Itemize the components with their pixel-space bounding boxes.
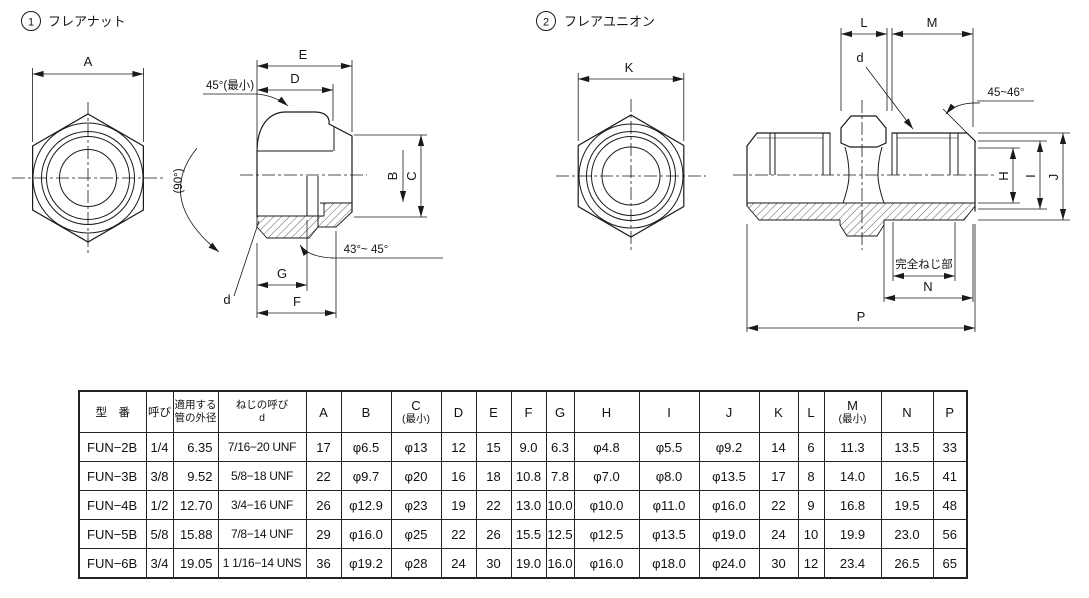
table-cell: 22 — [476, 491, 511, 520]
table-cell: φ9.7 — [341, 462, 391, 491]
column-header: P — [933, 391, 967, 433]
table-cell: FUN−3B — [79, 462, 146, 491]
column-header: L — [798, 391, 824, 433]
column-header: I — [639, 391, 699, 433]
table-cell: 26 — [476, 520, 511, 549]
table-cell: φ16.0 — [574, 549, 639, 579]
figure2-title: フレアユニオン — [564, 14, 655, 29]
table-cell: 24 — [441, 549, 476, 579]
table-cell: 12.5 — [546, 520, 574, 549]
table-cell: 9.0 — [511, 433, 546, 462]
column-header: C(最小) — [391, 391, 441, 433]
table-cell: 16.0 — [546, 549, 574, 579]
table-cell: 16.5 — [881, 462, 933, 491]
thread-note-label: 完全ねじ部 — [895, 257, 953, 271]
table-cell: 18 — [476, 462, 511, 491]
figure1: 1 フレアナット A — [12, 12, 443, 319]
dim-label-h: H — [996, 171, 1011, 180]
table-cell: 22 — [759, 491, 798, 520]
column-header: M(最小) — [824, 391, 881, 433]
table-cell: 15.5 — [511, 520, 546, 549]
figure1-number: 1 — [28, 17, 34, 29]
table-cell: 23.0 — [881, 520, 933, 549]
table-cell: 29 — [306, 520, 341, 549]
column-header: F — [511, 391, 546, 433]
dim-label-k: K — [625, 60, 634, 75]
table-cell: 16 — [441, 462, 476, 491]
column-header: 型 番 — [79, 391, 146, 433]
table-cell: 30 — [476, 549, 511, 579]
table-cell: 14.0 — [824, 462, 881, 491]
table-cell: FUN−2B — [79, 433, 146, 462]
table-cell: 6.35 — [173, 433, 218, 462]
table-row: FUN−5B5/815.887/8−14 UNF29φ16.0φ25222615… — [79, 520, 967, 549]
table-cell: 26 — [306, 491, 341, 520]
table-cell: φ19.0 — [699, 520, 759, 549]
table-cell: 12 — [798, 549, 824, 579]
table-cell: 7/16−20 UNF — [218, 433, 306, 462]
column-header: H — [574, 391, 639, 433]
table-body: FUN−2B1/46.357/16−20 UNF17φ6.5φ1312159.0… — [79, 433, 967, 579]
dim-label-m: M — [927, 15, 938, 30]
table-cell: 36 — [306, 549, 341, 579]
table-cell: 17 — [306, 433, 341, 462]
table-cell: φ8.0 — [639, 462, 699, 491]
table-cell: 41 — [933, 462, 967, 491]
table-cell: 3/8 — [146, 462, 173, 491]
column-header: J — [699, 391, 759, 433]
table-cell: 30 — [759, 549, 798, 579]
figure1-title: フレアナット — [48, 14, 126, 29]
table-cell: FUN−6B — [79, 549, 146, 579]
drawings-canvas: 1 フレアナット A — [0, 0, 1089, 370]
column-header: 呼び — [146, 391, 173, 433]
figure2: 2 フレアユニオン K — [537, 12, 1071, 333]
table-cell: φ4.8 — [574, 433, 639, 462]
table-cell: 22 — [441, 520, 476, 549]
table-cell: 19.05 — [173, 549, 218, 579]
dim-label-c: C — [404, 171, 419, 180]
technical-drawing-sheet: 1 フレアナット A — [0, 0, 1089, 598]
dimension-table: 型 番呼び適用する管の外径ねじの呼びdABC(最小)DEFGHIJKLM(最小)… — [78, 390, 968, 579]
dim-label-i: I — [1023, 174, 1038, 178]
table-cell: 1/4 — [146, 433, 173, 462]
table-cell: 10.8 — [511, 462, 546, 491]
table-cell: 15 — [476, 433, 511, 462]
table-cell: φ13.5 — [639, 520, 699, 549]
table-cell: 6.3 — [546, 433, 574, 462]
table-cell: 26.5 — [881, 549, 933, 579]
table-cell: φ12.5 — [574, 520, 639, 549]
dim-label-d-thread: d — [223, 292, 230, 307]
flare-nut-front-view: A — [12, 54, 164, 254]
table-cell: φ5.5 — [639, 433, 699, 462]
table-cell: 8 — [798, 462, 824, 491]
dim-label-b: B — [385, 172, 400, 181]
table-cell: 5/8−18 UNF — [218, 462, 306, 491]
figure1-header: 1 フレアナット — [22, 12, 126, 31]
table-cell: 12.70 — [173, 491, 218, 520]
table-cell: 15.88 — [173, 520, 218, 549]
table-cell: 3/4 — [146, 549, 173, 579]
angle-callout-45min: 45°(最小) — [206, 79, 254, 92]
dim-label-n: N — [923, 279, 932, 294]
table-cell: 10.0 — [546, 491, 574, 520]
table-cell: 9 — [798, 491, 824, 520]
figure2-header: 2 フレアユニオン — [537, 12, 656, 31]
angle-callout-45-46: 45~46° — [988, 87, 1025, 99]
table-cell: FUN−5B — [79, 520, 146, 549]
table-cell: 11.3 — [824, 433, 881, 462]
flare-nut-section-view: E D B C G F 45°(最小) — [173, 47, 443, 318]
angle-callout-43-45: 43°~ 45° — [344, 244, 389, 256]
table-cell: 13.5 — [881, 433, 933, 462]
table-cell: FUN−4B — [79, 491, 146, 520]
column-header: G — [546, 391, 574, 433]
flare-union-front-view: K — [556, 60, 706, 253]
table-cell: 56 — [933, 520, 967, 549]
table-row: FUN−2B1/46.357/16−20 UNF17φ6.5φ1312159.0… — [79, 433, 967, 462]
table-cell: 10 — [798, 520, 824, 549]
column-header: N — [881, 391, 933, 433]
table-cell: φ25 — [391, 520, 441, 549]
column-header: E — [476, 391, 511, 433]
table-cell: φ7.0 — [574, 462, 639, 491]
table-cell: φ20 — [391, 462, 441, 491]
table-cell: 19.0 — [511, 549, 546, 579]
table-cell: 12 — [441, 433, 476, 462]
table-cell: 33 — [933, 433, 967, 462]
dim-label-f: F — [293, 294, 301, 309]
table-cell: 16.8 — [824, 491, 881, 520]
table-cell: 9.52 — [173, 462, 218, 491]
table-cell: 48 — [933, 491, 967, 520]
column-header: ねじの呼びd — [218, 391, 306, 433]
table-cell: φ19.2 — [341, 549, 391, 579]
table-cell: φ23 — [391, 491, 441, 520]
dim-label-a: A — [84, 54, 93, 69]
table-cell: φ16.0 — [699, 491, 759, 520]
table-cell: 24 — [759, 520, 798, 549]
column-header: D — [441, 391, 476, 433]
dim-label-d-width: D — [290, 71, 299, 86]
table-cell: φ13 — [391, 433, 441, 462]
table-row: FUN−6B3/419.051 1/16−14 UNS36φ19.2φ28243… — [79, 549, 967, 579]
table-cell: 17 — [759, 462, 798, 491]
table-cell: 23.4 — [824, 549, 881, 579]
dim-label-j: J — [1046, 174, 1061, 181]
table-cell: φ18.0 — [639, 549, 699, 579]
table-cell: 7.8 — [546, 462, 574, 491]
table-cell: φ9.2 — [699, 433, 759, 462]
column-header: B — [341, 391, 391, 433]
dim-label-g: G — [277, 266, 287, 281]
table-row: FUN−4B1/212.703/4−16 UNF26φ12.9φ23192213… — [79, 491, 967, 520]
column-header: K — [759, 391, 798, 433]
table-cell: φ10.0 — [574, 491, 639, 520]
table-cell: 19 — [441, 491, 476, 520]
table-cell: φ11.0 — [639, 491, 699, 520]
dim-label-e: E — [299, 47, 308, 62]
dim-label-l: L — [860, 15, 867, 30]
figure2-number: 2 — [543, 17, 549, 29]
table-cell: 13.0 — [511, 491, 546, 520]
table-row: FUN−3B3/89.525/8−18 UNF22φ9.7φ20161810.8… — [79, 462, 967, 491]
table-cell: 7/8−14 UNF — [218, 520, 306, 549]
column-header: 適用する管の外径 — [173, 391, 218, 433]
table-cell: φ6.5 — [341, 433, 391, 462]
dim-label-d-thread: d — [856, 50, 863, 65]
table-cell: 14 — [759, 433, 798, 462]
table-cell: 65 — [933, 549, 967, 579]
dim-label-p: P — [857, 309, 866, 324]
table-cell: 1/2 — [146, 491, 173, 520]
column-header: A — [306, 391, 341, 433]
table-cell: 6 — [798, 433, 824, 462]
table-cell: φ12.9 — [341, 491, 391, 520]
table-cell: 22 — [306, 462, 341, 491]
flare-union-section-view: L M d 45~46° H — [733, 15, 1070, 332]
table-cell: 5/8 — [146, 520, 173, 549]
table-cell: 19.5 — [881, 491, 933, 520]
table-cell: 3/4−16 UNF — [218, 491, 306, 520]
table-cell: 19.9 — [824, 520, 881, 549]
table-cell: 1 1/16−14 UNS — [218, 549, 306, 579]
table-cell: φ16.0 — [341, 520, 391, 549]
table-cell: φ28 — [391, 549, 441, 579]
table-cell: φ13.5 — [699, 462, 759, 491]
table-cell: φ24.0 — [699, 549, 759, 579]
table-header-row: 型 番呼び適用する管の外径ねじの呼びdABC(最小)DEFGHIJKLM(最小)… — [79, 391, 967, 433]
